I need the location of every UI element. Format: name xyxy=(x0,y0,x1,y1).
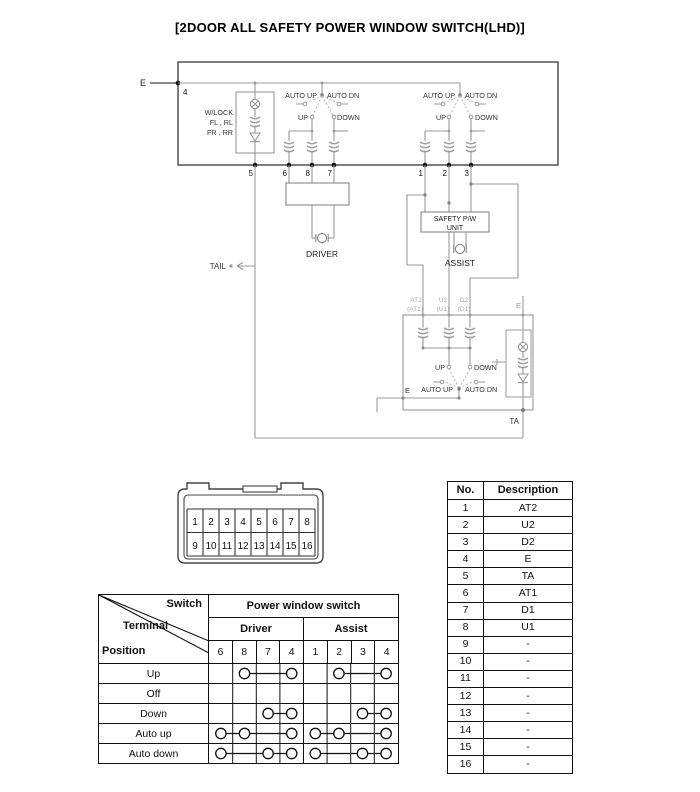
position-row: Auto up xyxy=(99,724,399,744)
table-row: 11- xyxy=(448,670,573,687)
pin-no: 12 xyxy=(448,688,484,705)
assist-auto-dn-label: AUTO DN xyxy=(465,91,497,100)
assist-auto-up-label: AUTO UP xyxy=(423,91,455,100)
table-row: 5TA xyxy=(448,568,573,585)
corner-terminal-label: Terminal xyxy=(123,620,168,632)
pin-desc: - xyxy=(484,705,573,722)
table-corner-cell: Switch Terminal Position xyxy=(99,595,209,664)
switch-position-table: Switch Terminal Position Power window sw… xyxy=(98,594,399,764)
u2-wire-label: U2 xyxy=(439,297,448,304)
main-switch-box xyxy=(178,62,558,165)
connector-pin-8: 8 xyxy=(304,517,310,528)
table-row: 9- xyxy=(448,636,573,653)
pin-desc: E xyxy=(484,551,573,568)
pin5-label: 5 xyxy=(249,169,254,178)
driver-rocker-switch: AUTO UP AUTO DN UP DOWN xyxy=(285,91,360,141)
lower-rocker-switch: UP DOWN AUTO UP AUTO DN xyxy=(421,363,497,398)
pin-no: 2 xyxy=(448,517,484,534)
table-row: 14- xyxy=(448,722,573,739)
table-header-row: No. Description xyxy=(448,482,573,500)
table-row: 6AT1 xyxy=(448,585,573,602)
d1-wire-label: (D1) xyxy=(458,306,471,313)
terminal-col: 1 xyxy=(304,641,328,664)
driver-motor-label: DRIVER xyxy=(306,249,338,259)
driver-auto-up-label: AUTO UP xyxy=(285,91,317,100)
pin-desc: - xyxy=(484,670,573,687)
connector-pin-13: 13 xyxy=(253,541,265,552)
pin-desc: TA xyxy=(484,568,573,585)
position-row: Auto down xyxy=(99,744,399,764)
corner-switch-label: Switch xyxy=(167,598,202,610)
connector-pin-11: 11 xyxy=(222,541,233,552)
table-row: 8U1 xyxy=(448,619,573,636)
terminal-col: 4 xyxy=(280,641,304,664)
position-label: Auto down xyxy=(99,744,209,764)
connector-pin-5: 5 xyxy=(256,517,262,528)
table-row: 1AT2 xyxy=(448,500,573,517)
wlock-label-line1: W/LOCK xyxy=(205,108,234,117)
pin6-label: 6 xyxy=(283,169,288,178)
pin-desc: - xyxy=(484,756,573,773)
pin-no: 3 xyxy=(448,534,484,551)
pin-description-table: No. Description 1AT2 2U2 3D2 4E 5TA 6AT1… xyxy=(447,481,573,774)
connector-pin-3: 3 xyxy=(224,517,230,528)
pin-desc: - xyxy=(484,739,573,756)
connection-row-graphic xyxy=(209,664,398,683)
driver-switch-block xyxy=(286,183,349,205)
connector-pin-15: 15 xyxy=(285,541,297,552)
pin-desc: - xyxy=(484,636,573,653)
corner-position-label: Position xyxy=(102,645,145,657)
connector-pin-7: 7 xyxy=(288,517,294,528)
pin-no: 14 xyxy=(448,722,484,739)
pin-desc: AT2 xyxy=(484,500,573,517)
pin-no: 15 xyxy=(448,739,484,756)
illumination-diode-icon xyxy=(518,374,528,383)
position-label: Up xyxy=(99,664,209,684)
position-row: Down xyxy=(99,704,399,724)
position-row: Off xyxy=(99,684,399,704)
ground-label-lower: E xyxy=(405,386,410,395)
table-row: 4E xyxy=(448,551,573,568)
connector-pin-2: 2 xyxy=(208,517,214,528)
pin-desc: D1 xyxy=(484,602,573,619)
terminal-col: 2 xyxy=(327,641,351,664)
terminal-col: 3 xyxy=(351,641,375,664)
table-row: 7D1 xyxy=(448,602,573,619)
table-row: 2U2 xyxy=(448,517,573,534)
terminal-col: 8 xyxy=(232,641,256,664)
lower-auto-up-label: AUTO UP xyxy=(421,385,453,394)
table-row: 12- xyxy=(448,688,573,705)
illumination-lamp-icon xyxy=(518,342,527,351)
safety-unit-label-line2: UNIT xyxy=(447,225,464,232)
at2-wire-label: AT2 xyxy=(410,297,422,304)
driver-subheader: Driver xyxy=(209,618,304,641)
table-row: 13- xyxy=(448,705,573,722)
table-row: 15- xyxy=(448,739,573,756)
position-label: Auto up xyxy=(99,724,209,744)
illumination-cell xyxy=(506,330,531,397)
table-row: 3D2 xyxy=(448,534,573,551)
pin-desc: AT1 xyxy=(484,585,573,602)
pin4-label: 4 xyxy=(183,88,188,97)
pin-no: 16 xyxy=(448,756,484,773)
table-row: 10- xyxy=(448,653,573,670)
wlock-label-line2: FL , RL xyxy=(210,118,233,127)
connector-pin-12: 12 xyxy=(237,541,249,552)
d2-wire-label: D2 xyxy=(460,297,469,304)
pin-desc: U1 xyxy=(484,619,573,636)
pin2-label: 2 xyxy=(443,169,448,178)
pin-desc: U2 xyxy=(484,517,573,534)
table-row: 16- xyxy=(448,756,573,773)
description-header: Description xyxy=(484,482,573,500)
connector-pin-9: 9 xyxy=(192,541,198,552)
group-header: Power window switch xyxy=(209,595,399,618)
assist-rocker-switch: AUTO UP AUTO DN UP DOWN xyxy=(423,91,498,141)
connector-pin-14: 14 xyxy=(269,541,281,552)
pin-desc: - xyxy=(484,653,573,670)
connector-pin-1: 1 xyxy=(192,517,198,528)
tail-label: TAIL xyxy=(210,262,227,271)
pin1-label: 1 xyxy=(419,169,424,178)
position-row: Up xyxy=(99,664,399,684)
lower-down-label: DOWN xyxy=(474,363,497,372)
position-label: Off xyxy=(99,684,209,704)
pin-desc: D2 xyxy=(484,534,573,551)
connector-pin-4: 4 xyxy=(240,517,246,528)
pin8-label: 8 xyxy=(306,169,311,178)
lower-up-label: UP xyxy=(435,363,445,372)
ground-label-right: E xyxy=(516,301,521,310)
terminal-col: 4 xyxy=(375,641,399,664)
u1-wire-label: (U1) xyxy=(437,306,450,313)
connector-pin-6: 6 xyxy=(272,517,278,528)
pin-no: 13 xyxy=(448,705,484,722)
pin3-label: 3 xyxy=(465,169,470,178)
resistor-icon xyxy=(250,117,260,127)
illumination-resistor-icon xyxy=(518,358,528,368)
connector-drawing: 1 2 3 4 5 6 7 8 9 10 11 12 13 14 15 16 xyxy=(178,483,323,563)
pin-no: 1 xyxy=(448,500,484,517)
assist-subheader: Assist xyxy=(304,618,399,641)
pin-no: 4 xyxy=(448,551,484,568)
wlock-label-line3: FR , RR xyxy=(207,128,233,137)
lower-auto-dn-label: AUTO DN xyxy=(465,385,497,394)
pin-no: 9 xyxy=(448,636,484,653)
driver-up-label: UP xyxy=(298,113,308,122)
pin-desc: - xyxy=(484,722,573,739)
lamp-icon xyxy=(250,99,259,108)
driver-auto-dn-label: AUTO DN xyxy=(327,91,359,100)
ta-label: TA xyxy=(509,417,519,426)
pin-no: 8 xyxy=(448,619,484,636)
tail-connector xyxy=(229,263,255,270)
pin-no: 10 xyxy=(448,653,484,670)
no-header: No. xyxy=(448,482,484,500)
connection-row-graphic xyxy=(209,684,398,703)
driver-down-label: DOWN xyxy=(337,113,360,122)
ground-label-top: E xyxy=(140,78,146,88)
pin7-label: 7 xyxy=(328,169,333,178)
assist-motor-icon xyxy=(454,244,466,253)
position-label: Down xyxy=(99,704,209,724)
assist-down-label: DOWN xyxy=(475,113,498,122)
pin-desc: - xyxy=(484,688,573,705)
connector-pin-10: 10 xyxy=(205,541,217,552)
connection-row-graphic xyxy=(209,724,398,743)
driver-motor-icon xyxy=(316,233,328,242)
pin-no: 6 xyxy=(448,585,484,602)
pin-no: 5 xyxy=(448,568,484,585)
pin-no: 7 xyxy=(448,602,484,619)
diode-icon xyxy=(250,133,260,142)
terminal-col: 6 xyxy=(209,641,233,664)
wiring-diagram-page: [2DOOR ALL SAFETY POWER WINDOW SWITCH(LH… xyxy=(0,0,700,792)
assist-motor-label: ASSIST xyxy=(445,258,475,268)
terminal-col: 7 xyxy=(256,641,280,664)
at1-wire-label: (AT1) xyxy=(407,306,423,313)
safety-unit-label-line1: SAFETY P/W xyxy=(434,216,477,223)
assist-up-label: UP xyxy=(436,113,446,122)
pin-no: 11 xyxy=(448,670,484,687)
connection-row-graphic xyxy=(209,744,398,763)
connection-row-graphic xyxy=(209,704,398,723)
connector-pin-16: 16 xyxy=(301,541,313,552)
